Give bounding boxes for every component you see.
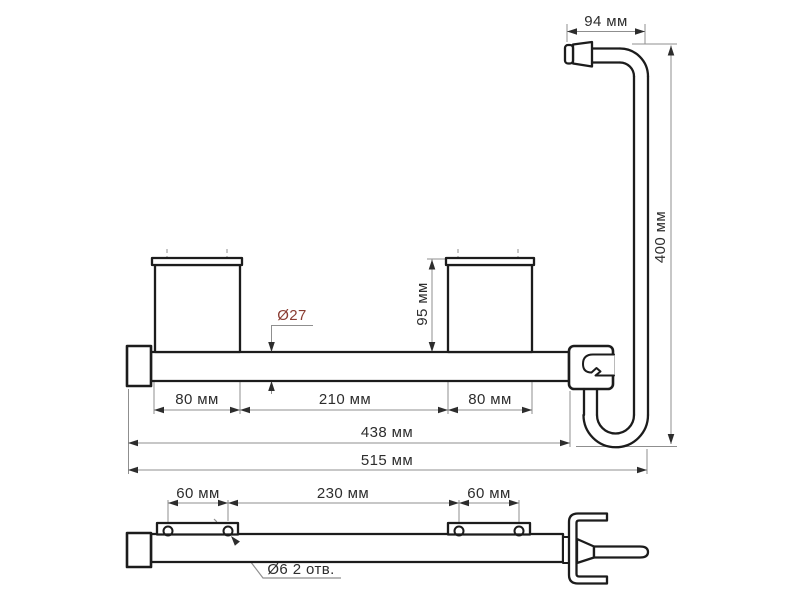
- technical-drawing-page: 94 мм 400 мм 95 мм Ø27 80 мм 210 мм 80 м…: [0, 0, 800, 600]
- dim-center-hole-spacing: 230 мм: [317, 485, 369, 502]
- dim-tube-diameter: Ø27: [277, 307, 307, 324]
- dim-bar-length: 438 мм: [361, 424, 413, 441]
- u-hook: [584, 415, 649, 447]
- drawing-canvas: 94 мм 400 мм 95 мм Ø27 80 мм 210 мм 80 м…: [0, 0, 800, 600]
- dimension-labels: 94 мм 400 мм 95 мм Ø27 80 мм 210 мм 80 м…: [175, 13, 669, 578]
- latch-block: [569, 346, 614, 389]
- end-cap-plan: [127, 533, 151, 567]
- locking-bar: [151, 352, 569, 381]
- end-cap: [127, 346, 151, 386]
- dim-between-brackets: 210 мм: [319, 391, 371, 408]
- mounting-bracket-right: [446, 258, 534, 352]
- dim-handle-length: 94 мм: [584, 13, 627, 30]
- handle-grip: [565, 42, 592, 67]
- dim-overall-height: 400 мм: [652, 211, 669, 263]
- hole-callout: Ø6 2 отв.: [267, 561, 334, 578]
- dim-left-bracket-offset: 80 мм: [175, 391, 218, 408]
- dim-overall-length: 515 мм: [361, 452, 413, 469]
- dim-left-hole-spacing: 60 мм: [176, 485, 219, 502]
- mounting-bracket-left: [152, 258, 242, 352]
- handle-tube-plan: [594, 547, 648, 558]
- dim-right-bracket-offset: 80 мм: [468, 391, 511, 408]
- plan-view: [127, 514, 648, 584]
- dim-right-hole-spacing: 60 мм: [467, 485, 510, 502]
- side-view: [127, 42, 648, 447]
- dim-bracket-height: 95 мм: [414, 282, 431, 325]
- bracket-plate-left: [157, 523, 238, 535]
- bracket-plate-right: [448, 523, 530, 535]
- grip-cone-plan: [577, 539, 594, 563]
- locking-bar-plan: [151, 534, 563, 562]
